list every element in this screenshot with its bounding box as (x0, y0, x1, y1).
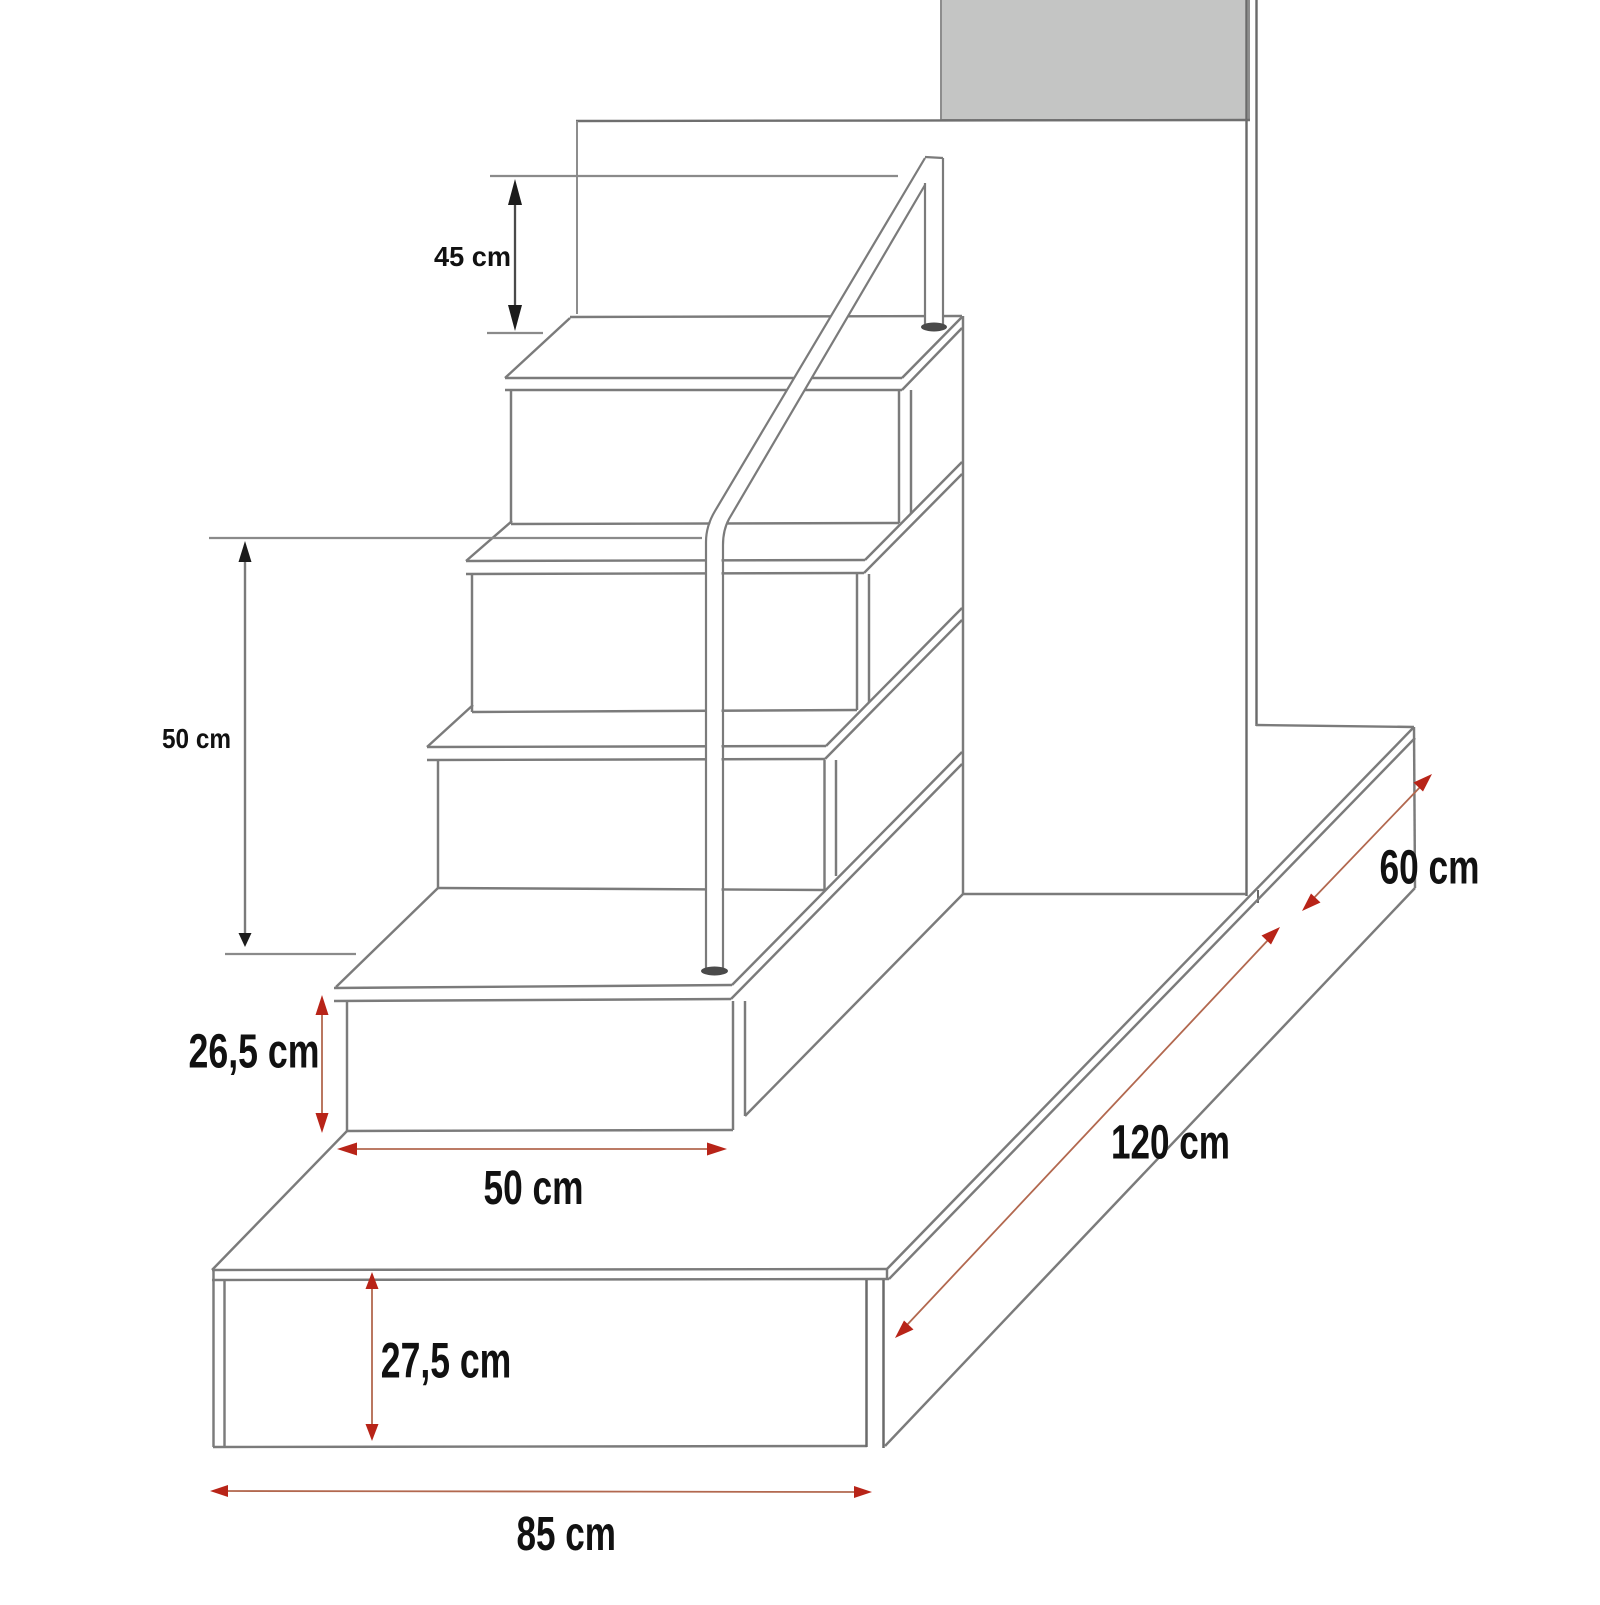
svg-text:60 cm: 60 cm (1380, 841, 1480, 894)
svg-text:50 cm: 50 cm (484, 1162, 584, 1215)
svg-text:120 cm: 120 cm (1111, 1117, 1230, 1170)
svg-text:26,5 cm: 26,5 cm (189, 1026, 320, 1079)
svg-text:85 cm: 85 cm (517, 1508, 617, 1561)
svg-text:27,5 cm: 27,5 cm (381, 1332, 512, 1388)
svg-text:45 cm: 45 cm (434, 241, 511, 272)
svg-text:50 cm: 50 cm (162, 723, 231, 754)
